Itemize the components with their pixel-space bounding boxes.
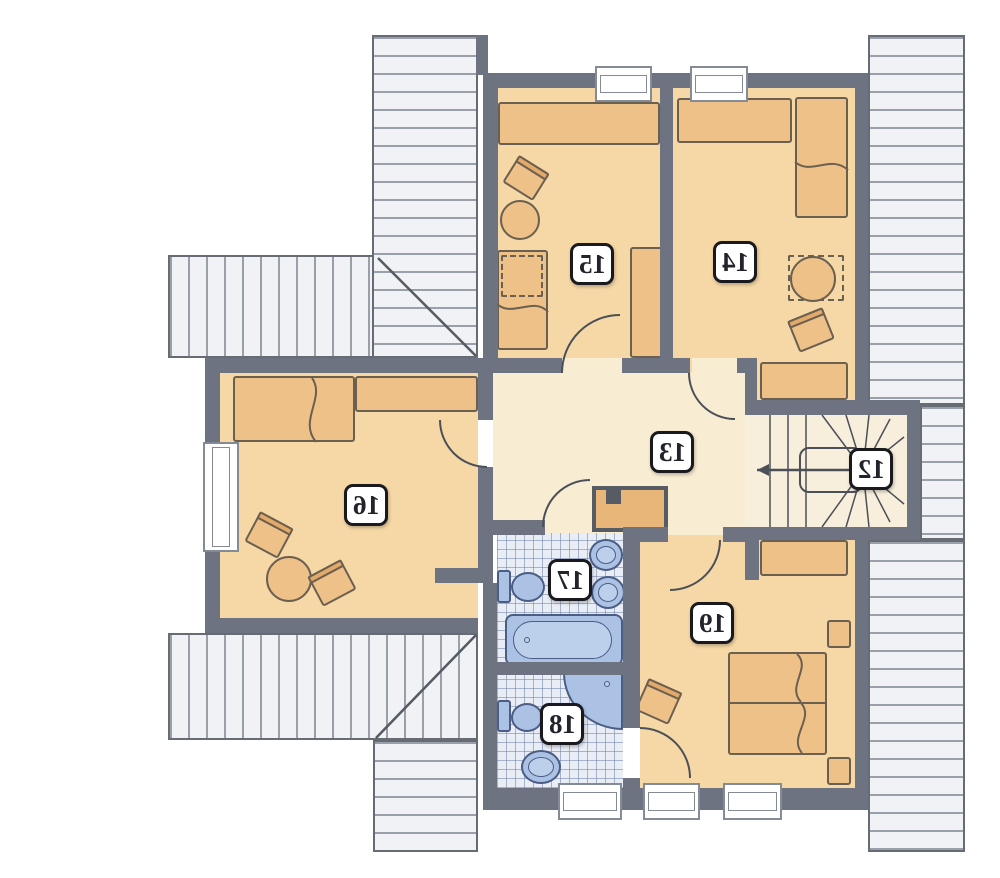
bed: [233, 376, 355, 442]
wardrobe: [760, 362, 848, 400]
washbasin: [591, 576, 625, 609]
wall: [205, 358, 493, 373]
bed-pillow: [501, 255, 543, 297]
toilet-tank: [497, 570, 511, 603]
wall: [483, 73, 868, 88]
room-label-19: 19: [690, 602, 734, 644]
wall: [483, 583, 497, 788]
window-pane: [212, 447, 230, 547]
wall: [483, 88, 498, 373]
wall: [435, 568, 493, 583]
room-label-17: 17: [548, 559, 592, 601]
wall: [622, 358, 690, 373]
table: [266, 556, 312, 602]
nightstand: [827, 757, 851, 785]
window-pane: [600, 75, 647, 93]
room-label-14: 14: [713, 241, 757, 283]
wardrobe: [677, 98, 792, 143]
wall: [476, 35, 488, 75]
wall: [907, 415, 920, 527]
window: [558, 783, 622, 820]
sideboard: [355, 376, 478, 412]
washbasin-bowl: [528, 757, 554, 777]
wall: [623, 527, 668, 542]
table: [790, 256, 836, 302]
double-bed-split-line: [730, 702, 825, 704]
door-threshold-14: [692, 358, 737, 373]
roof-strip-top-left: [372, 35, 478, 358]
wardrobe: [760, 540, 848, 576]
wall: [745, 400, 920, 415]
room-number: 19: [699, 608, 726, 639]
hall-cabinet: [592, 486, 668, 532]
room-number: 17: [557, 565, 584, 596]
toilet-tank: [497, 700, 511, 732]
wall: [483, 520, 545, 535]
room-number: 13: [659, 437, 686, 468]
window: [203, 442, 239, 552]
window-pane: [563, 792, 617, 811]
wall: [660, 88, 673, 358]
roof-band-left-upper: [168, 255, 374, 358]
washbasin-bowl: [598, 583, 618, 602]
wall: [483, 662, 640, 675]
window-pane: [728, 792, 777, 811]
floor-plan: 12 13 14 15 16 17 18 19: [0, 0, 1000, 878]
roof-strip-bottom-left: [373, 740, 478, 852]
wall: [745, 527, 920, 540]
bed: [795, 97, 848, 218]
wall: [855, 540, 868, 810]
wall: [855, 88, 868, 405]
toilet-bowl: [511, 703, 543, 732]
room-number: 16: [353, 490, 380, 521]
window: [643, 783, 700, 820]
window: [723, 783, 782, 820]
room-number: 12: [858, 454, 885, 485]
roof-strip-right-bottom: [868, 540, 965, 852]
door-threshold-15: [562, 358, 622, 373]
roof-strip-top-right: [868, 35, 965, 405]
room-label-15: 15: [570, 243, 614, 285]
nightstand: [827, 620, 851, 648]
hall-cabinet-handle: [606, 490, 621, 504]
window: [595, 66, 652, 102]
room-label-16: 16: [344, 484, 388, 526]
room-number: 18: [549, 709, 576, 740]
room-number: 14: [722, 247, 749, 278]
washbasin: [521, 750, 561, 784]
wall: [478, 373, 493, 420]
wall: [623, 778, 640, 788]
room-label-13: 13: [650, 431, 694, 473]
room-label-18: 18: [540, 703, 584, 745]
wall: [483, 358, 562, 373]
room-number: 15: [579, 249, 606, 280]
wall: [205, 618, 478, 633]
wall: [745, 540, 759, 580]
shower-drain: [604, 681, 610, 687]
room-label-12: 12: [849, 448, 893, 490]
window-pane: [695, 75, 743, 93]
wall: [623, 535, 640, 728]
wardrobe: [498, 102, 660, 145]
washbasin-bowl: [596, 546, 616, 564]
toilet-bowl: [511, 572, 545, 602]
washbasin: [589, 539, 623, 571]
window-pane: [648, 792, 695, 811]
bathtub-drain: [524, 637, 530, 643]
roof-strip-right-mid: [920, 405, 965, 540]
stool: [500, 200, 540, 240]
roof-band-left-lower: [168, 633, 478, 740]
window: [690, 66, 748, 102]
wall: [723, 527, 745, 542]
